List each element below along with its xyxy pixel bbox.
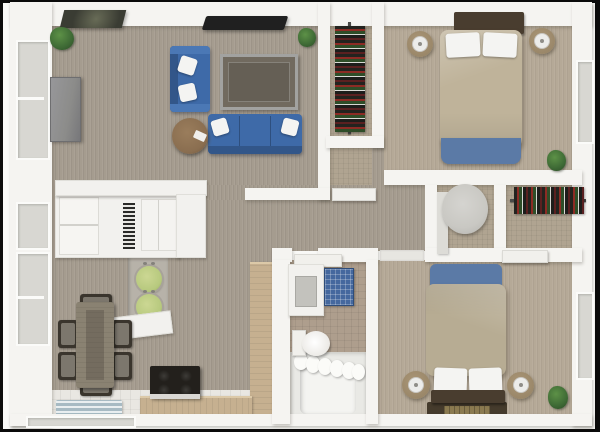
- cabinet-seam: [158, 200, 159, 250]
- loveseat: [170, 46, 210, 112]
- dining-chair-left: [58, 352, 78, 380]
- dryer-knob: [151, 290, 155, 293]
- kitchen-counter-vertical: [250, 262, 272, 422]
- bed1-blue-throw: [441, 138, 521, 164]
- window-bedroom2: [576, 292, 594, 380]
- wall-bedroom1-south: [384, 170, 582, 185]
- lamp-finial: [540, 39, 544, 43]
- washer-knob: [151, 262, 155, 265]
- washer: [136, 266, 162, 292]
- wall-closet-bedroom1: [372, 2, 384, 148]
- window-dining: [16, 252, 50, 346]
- door-leaf-closet: [502, 250, 548, 263]
- flat-screen-tv: [202, 16, 289, 30]
- stove-rack-detail: [123, 203, 135, 249]
- bath-vanity: [288, 264, 324, 316]
- dining-chair-left: [58, 320, 78, 348]
- bed2-duvet: [426, 284, 506, 376]
- bed1-pillow: [445, 32, 480, 58]
- coffee-table: [220, 54, 298, 110]
- stove-front-edge: [150, 394, 200, 399]
- loveseat-back: [170, 46, 178, 112]
- wall-bath-bedroom2: [366, 260, 378, 424]
- chair-seat: [115, 323, 129, 345]
- wall-art: [60, 10, 126, 28]
- closet2-hanging-clothes: [514, 187, 584, 214]
- ottoman-magazine: [193, 130, 207, 142]
- table-runner: [86, 310, 104, 380]
- window-living: [16, 40, 50, 160]
- bed2-nightstand-right: [507, 372, 534, 399]
- threshold-bedroom2: [380, 250, 424, 261]
- loveseat-arm: [170, 46, 210, 54]
- closet1-hanging-clothes: [335, 26, 365, 132]
- bed1-nightstand-right: [529, 28, 555, 54]
- window-left-mid: [16, 202, 50, 250]
- bed2-headboard: [431, 390, 505, 403]
- chair-seat: [115, 355, 129, 377]
- window-mullion: [18, 97, 44, 100]
- corner-plant: [50, 27, 74, 50]
- dining-chair-right: [112, 320, 132, 348]
- bed1-nightstand-left: [407, 31, 433, 57]
- kitchen-side-counter: [176, 194, 206, 258]
- dining-chair-right: [112, 352, 132, 380]
- sofa-back: [208, 146, 302, 154]
- wall-living-closet: [318, 2, 330, 200]
- bedroom1-door-passage: [372, 146, 384, 190]
- throw-pillow: [177, 55, 198, 76]
- chair-seat: [61, 355, 75, 377]
- coffee-table-top: [228, 62, 290, 102]
- lamp-finial: [418, 42, 422, 46]
- lamp-finial: [414, 383, 418, 387]
- fridge-door-seam: [60, 224, 98, 226]
- dining-table: [76, 302, 114, 388]
- bedroom2-plant: [548, 386, 568, 409]
- refrigerator: [59, 197, 99, 255]
- window-bottom: [26, 416, 136, 428]
- cabinet-doors: [141, 199, 177, 251]
- shower-curtain: [352, 364, 365, 380]
- sofa: [208, 114, 302, 154]
- wall-living-south: [245, 188, 330, 200]
- sofa-cushion-seam: [239, 116, 240, 146]
- wc-round-basin: [442, 184, 488, 234]
- round-ottoman: [172, 118, 208, 154]
- floorplan-render: [0, 0, 600, 432]
- throw-pillow: [210, 117, 230, 137]
- bed1-pillow: [482, 32, 517, 58]
- loveseat-arm: [170, 104, 210, 112]
- lamp-finial: [519, 383, 523, 387]
- tv-panel: [50, 77, 81, 142]
- toilet-bowl: [302, 331, 330, 356]
- bedroom1-plant: [547, 150, 566, 171]
- vanity-sink-basin: [295, 276, 317, 307]
- washer-knob: [143, 262, 147, 265]
- throw-pillow: [177, 82, 197, 102]
- sofa-cushion-seam: [270, 116, 271, 146]
- bath-blue-crate: [324, 268, 354, 306]
- chair-seat: [61, 323, 75, 345]
- door-leaf-hall: [332, 188, 376, 201]
- bed2-nightstand-left: [402, 371, 430, 399]
- dryer-knob: [143, 290, 147, 293]
- window-mullion: [18, 296, 44, 299]
- wall-closet-shelf: [326, 136, 384, 148]
- stove: [150, 366, 200, 398]
- window-bedroom1: [576, 60, 594, 144]
- living-plant: [298, 28, 316, 47]
- throw-pillow: [280, 117, 299, 136]
